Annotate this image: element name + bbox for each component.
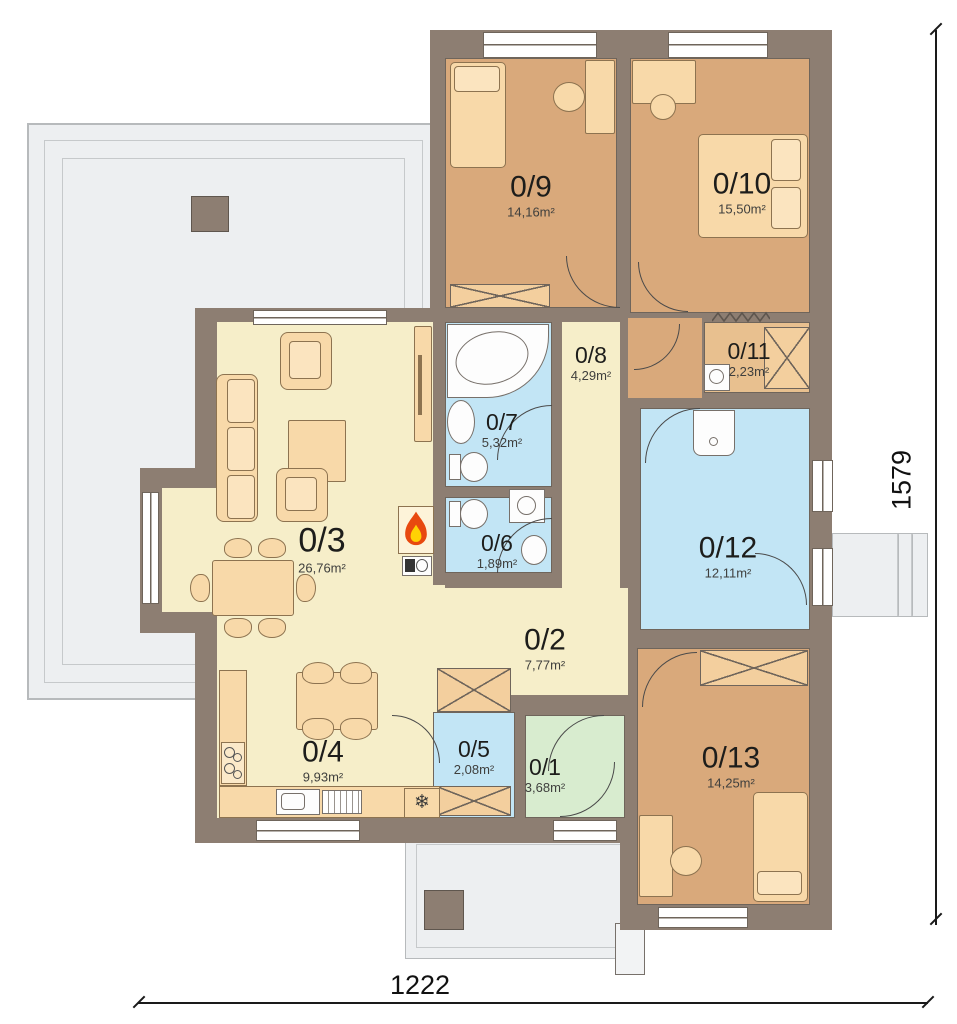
room-code: 0/12: [699, 532, 757, 564]
room-code: 0/6: [477, 531, 517, 555]
window-bedroom9-top: [483, 32, 597, 58]
bed-icon-0-9: [450, 62, 506, 168]
room-code: 0/10: [713, 168, 771, 200]
window-bedroom13-bottom: [658, 907, 748, 928]
desk-icon-0-9: [585, 60, 615, 134]
room-area: 7,77m²: [524, 658, 566, 672]
window-kitchen-bottom: [256, 820, 360, 841]
kitchen-sink-icon: [276, 789, 320, 815]
terrace-column: [191, 196, 229, 232]
room-label-0-13: 0/13 14,25m²: [702, 742, 760, 789]
chair-icon-0-13: [670, 846, 702, 876]
room-label-0-12: 0/12 12,11m²: [699, 532, 757, 579]
dining-chair-icon: [224, 538, 252, 558]
tv-cabinet-icon: [414, 326, 432, 442]
room-area: 14,16m²: [507, 205, 555, 219]
toilet-bowl-0-7: [460, 452, 488, 482]
room-code: 0/8: [571, 343, 611, 367]
stoop-step-line-2: [911, 534, 913, 616]
porch-column: [424, 890, 464, 930]
cooktop-icon: [221, 742, 245, 784]
pillow-icon: [454, 66, 500, 92]
room-area: 2,08m²: [454, 763, 494, 777]
room-code: 0/13: [702, 742, 760, 774]
room-label-0-6: 0/6 1,89m²: [477, 531, 517, 571]
room-area: 12,11m²: [699, 566, 757, 580]
zigzag-partition: [712, 311, 770, 323]
floor-plan-canvas: ❄ 0/3 26,76m² 0/9 14,16m² 0/10: [0, 0, 957, 1024]
stove-flue-icon: [402, 556, 432, 576]
room-code: 0/4: [302, 736, 344, 768]
chair-icon-0-9: [553, 82, 585, 112]
bed-icon-0-13: [753, 792, 808, 902]
wardrobe-corridor: [437, 668, 511, 712]
fridge-icon: ❄: [404, 788, 440, 818]
door-entry-opening: [553, 820, 617, 841]
room-label-0-7: 0/7 5,32m²: [482, 410, 522, 450]
kitchen-chair-icon: [302, 662, 334, 684]
washer-icon-0-6: [509, 489, 545, 523]
kitchen-chair-icon: [340, 662, 372, 684]
kitchen-chair-icon: [340, 718, 372, 740]
room-area: 15,50m²: [713, 202, 771, 216]
side-stoop: [832, 533, 928, 617]
dimension-label-right: 1579: [887, 450, 918, 510]
dining-chair-icon: [296, 574, 316, 602]
window-living-bay: [142, 492, 159, 604]
room-code: 0/2: [524, 624, 566, 656]
room-label-0-1: 0/1 3,68m²: [525, 755, 565, 795]
wardrobe-bedroom9: [450, 284, 550, 308]
room-label-0-4: 0/4 9,93m²: [302, 736, 344, 783]
wardrobe-pantry: [437, 786, 511, 816]
room-label-0-2: 0/2 7,77m²: [524, 624, 566, 671]
room-code: 0/11: [727, 339, 770, 363]
room-label-0-3: 0/3 26,76m²: [298, 523, 346, 574]
room-label-0-11: 0/11 2,23m²: [727, 339, 770, 379]
washer-icon-0-11: [704, 364, 730, 391]
drainer-icon: [322, 790, 362, 814]
room-label-0-9: 0/9 14,16m²: [507, 171, 555, 218]
room-label-0-8: 0/8 4,29m²: [571, 343, 611, 383]
room-code: 0/5: [454, 737, 494, 761]
pillow-icon: [771, 139, 801, 181]
room-label-0-10: 0/10 15,50m²: [713, 168, 771, 215]
wardrobe-room11: [764, 327, 810, 389]
room-code: 0/1: [525, 755, 565, 779]
room-area: 1,89m²: [477, 557, 517, 571]
room-label-0-5: 0/5 2,08m²: [454, 737, 494, 777]
stool-icon-0-10: [650, 94, 676, 120]
porch-post: [615, 923, 645, 975]
room-area: 14,25m²: [702, 776, 760, 790]
window-bedroom10-top: [668, 32, 768, 58]
room-area: 3,68m²: [525, 781, 565, 795]
stoop-step-line: [897, 534, 899, 616]
room-code: 0/3: [298, 523, 346, 559]
armchair-icon-top: [280, 332, 332, 390]
room-code: 0/9: [507, 171, 555, 203]
dimension-label-bottom: 1222: [390, 970, 450, 1001]
dining-chair-icon: [224, 618, 252, 638]
fireplace-icon: [398, 506, 434, 554]
room-area: 5,32m²: [482, 436, 522, 450]
dining-chair-icon: [258, 618, 286, 638]
dining-chair-icon: [258, 538, 286, 558]
toilet-bowl-0-6: [460, 499, 488, 529]
window-living-terrace: [253, 310, 387, 325]
room-area: 26,76m²: [298, 561, 346, 575]
room-area: 4,29m²: [571, 369, 611, 383]
dining-chair-icon: [190, 574, 210, 602]
dimension-line-bottom: [138, 1002, 928, 1004]
wardrobe-bedroom13: [700, 650, 808, 686]
dimension-line-right: [935, 30, 937, 925]
sofa-icon: [216, 374, 258, 522]
pillow-icon: [757, 871, 802, 895]
room-area: 2,23m²: [727, 365, 770, 379]
pillow-icon: [771, 187, 801, 229]
room-area: 9,93m²: [302, 770, 344, 784]
snowflake-glyph: ❄: [414, 792, 430, 813]
desk-icon-0-13: [639, 815, 673, 897]
window-room12-right: [812, 460, 833, 512]
room-code: 0/7: [482, 410, 522, 434]
dining-table-icon: [212, 560, 294, 616]
washbasin-icon-0-7: [447, 400, 475, 444]
armchair-icon-bottom: [276, 468, 328, 522]
door-room12-exterior: [812, 548, 833, 606]
